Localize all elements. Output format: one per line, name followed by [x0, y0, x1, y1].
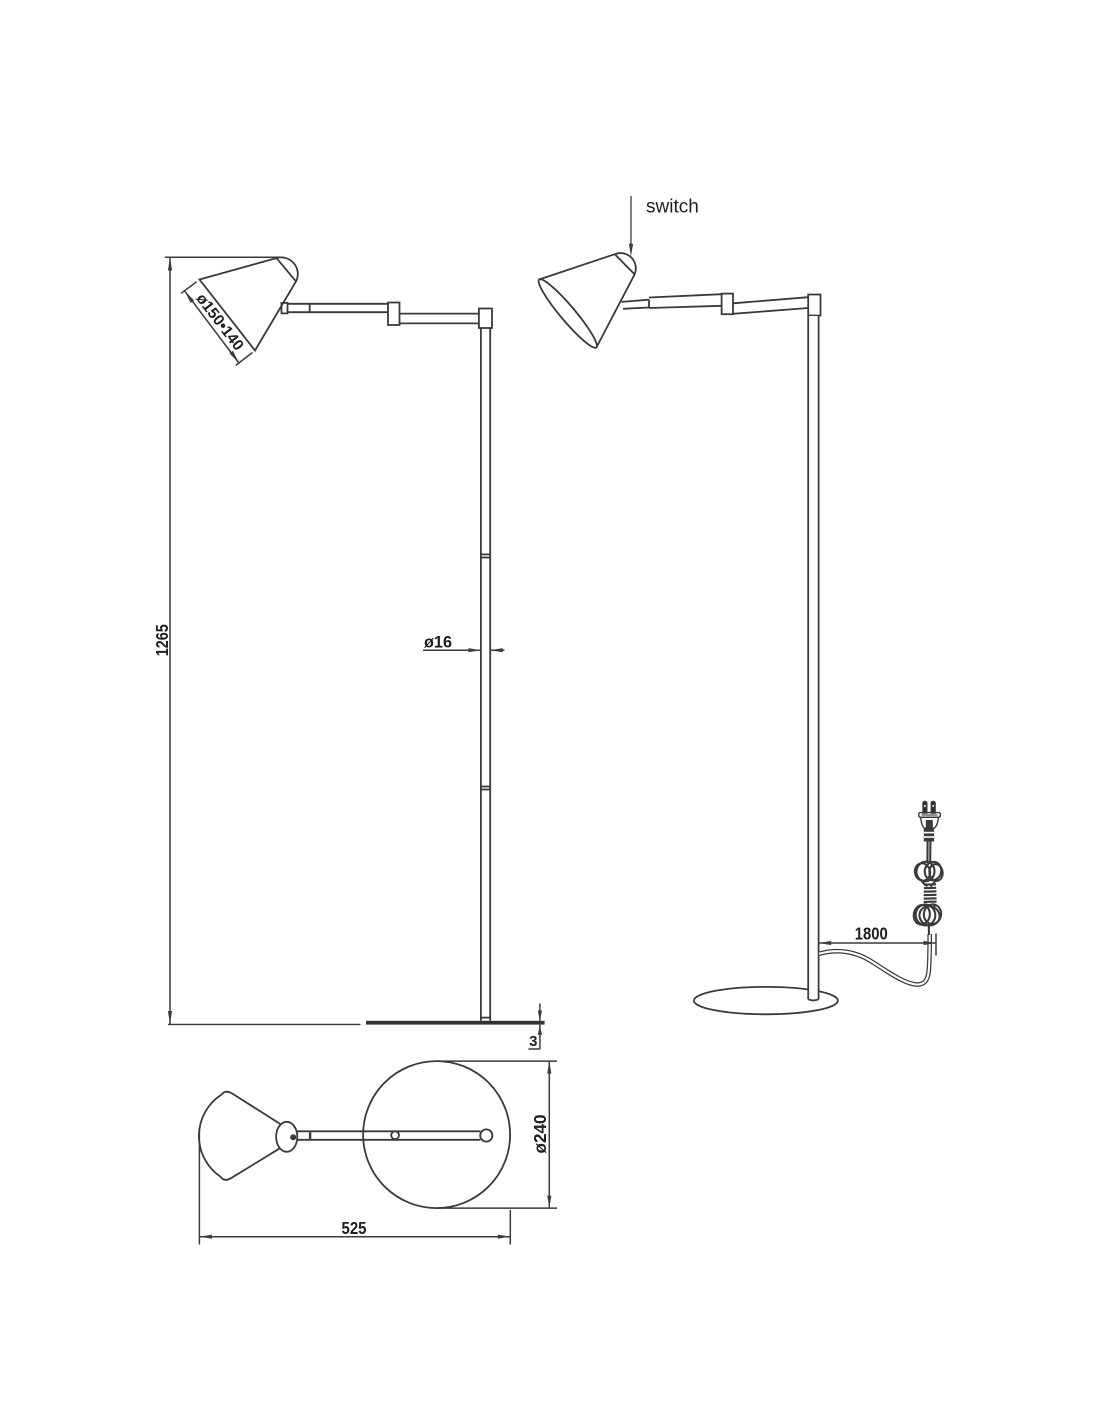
svg-text:switch: switch	[646, 197, 699, 218]
svg-text:ø240: ø240	[530, 1114, 550, 1153]
svg-text:ø16: ø16	[424, 634, 452, 652]
svg-text:1800: 1800	[855, 924, 888, 944]
svg-text:ø150•140: ø150•140	[192, 291, 246, 355]
svg-text:1265: 1265	[152, 624, 172, 656]
svg-text:3: 3	[529, 1033, 537, 1050]
svg-text:525: 525	[342, 1218, 367, 1238]
